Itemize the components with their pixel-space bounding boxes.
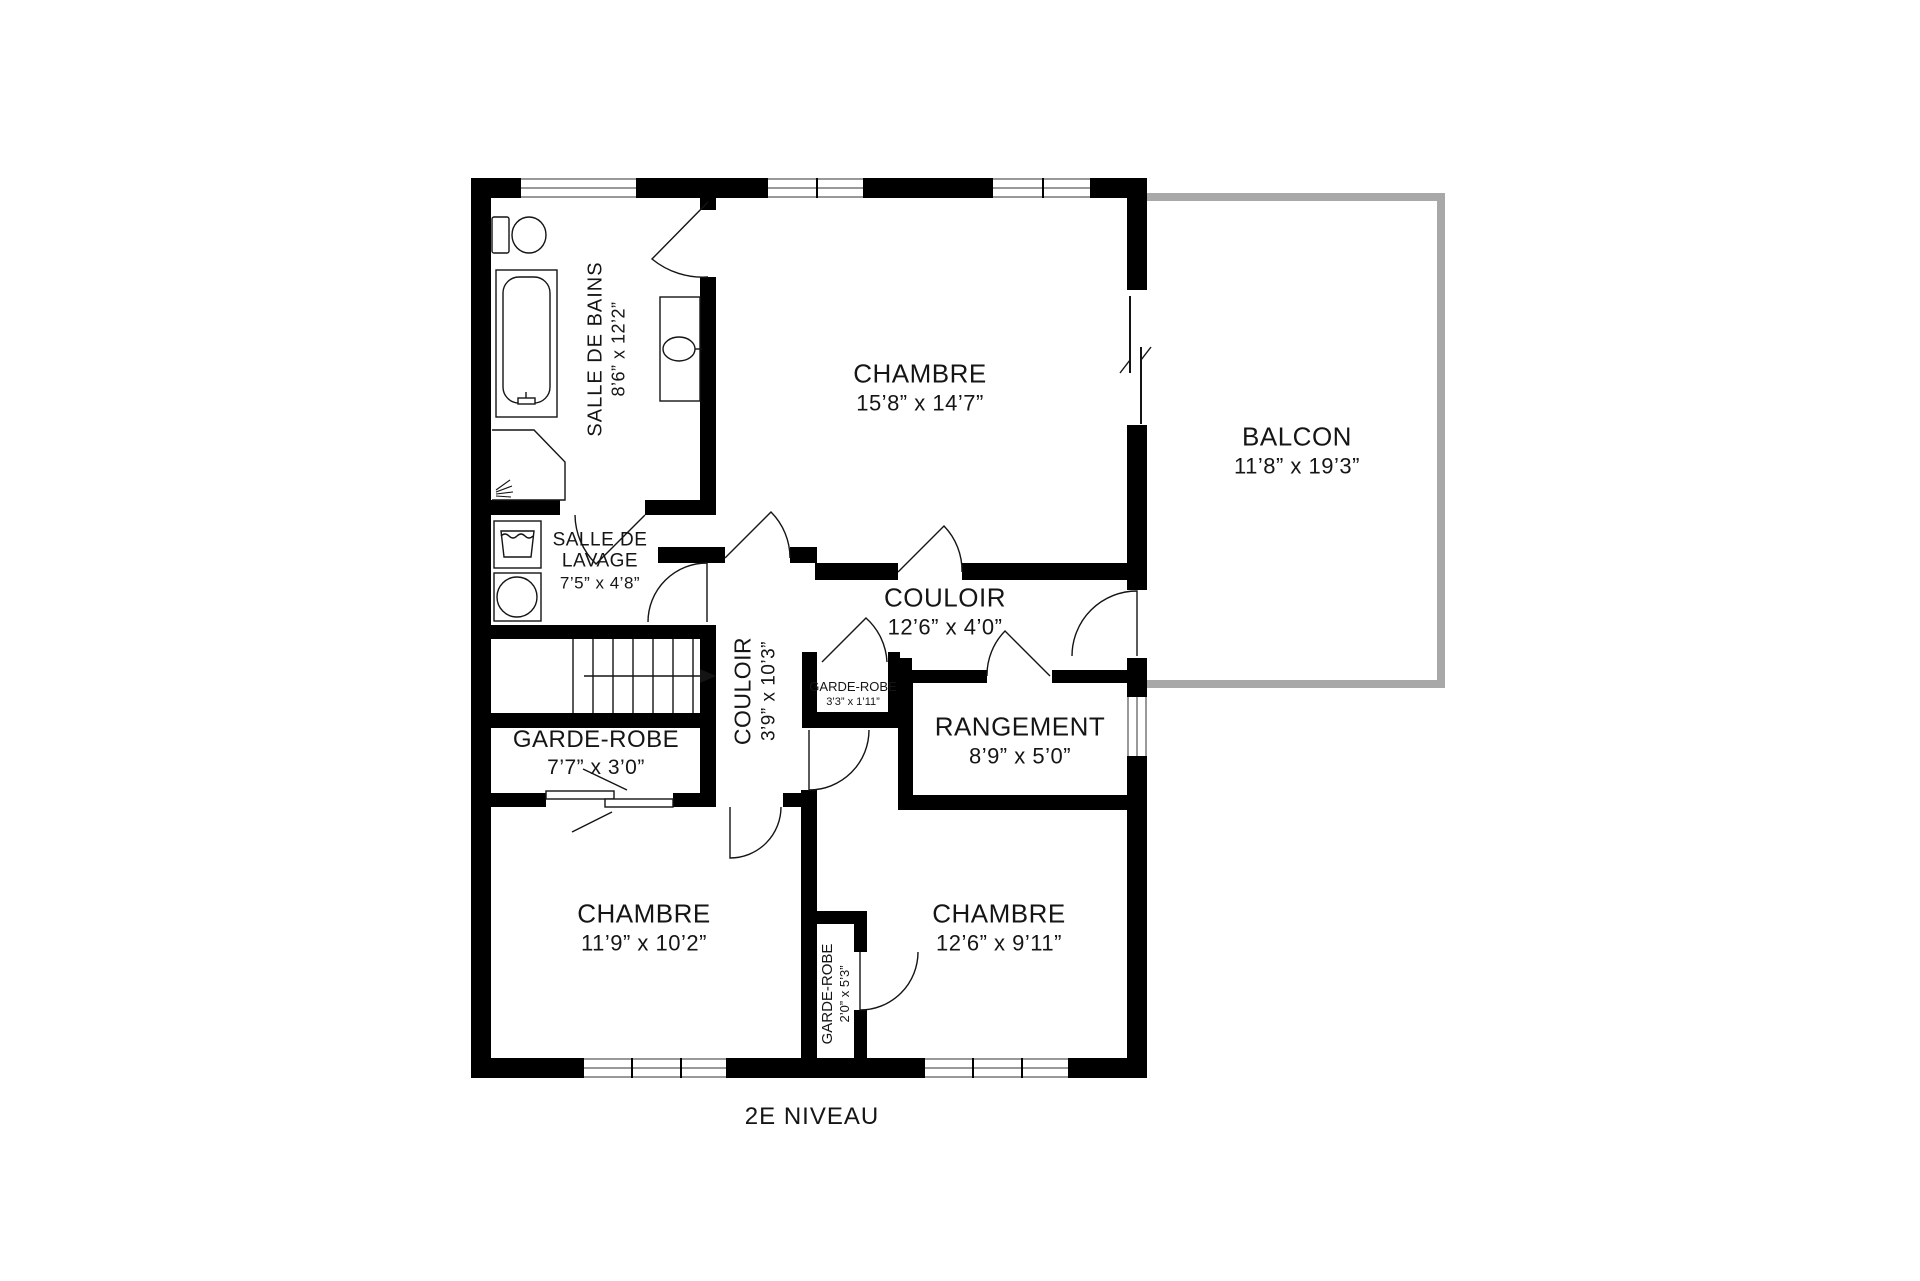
window-chambre-se — [923, 1058, 1070, 1078]
balcony-rail-top — [1147, 193, 1445, 201]
door-lavage-to-couloir — [648, 563, 707, 622]
room-dims: 7’5” x 4’8” — [553, 573, 648, 592]
wall-gr-strip-north — [801, 911, 867, 924]
door-couloir-to-chambre-w — [725, 512, 790, 558]
window-chambre-nord-1 — [766, 178, 865, 198]
wall-stairs-north — [491, 625, 716, 639]
room-dims: 12’6” x 9’11” — [932, 932, 1066, 957]
wall-junction-stub — [658, 547, 725, 563]
shower-icon — [492, 430, 565, 500]
room-label-balcon: BALCON 11’8” x 19’3” — [1234, 423, 1360, 480]
room-dims: 11’9” x 10’2” — [577, 932, 711, 957]
room-label-chambre-sud-est: CHAMBRE 12’6” x 9’11” — [932, 900, 1066, 957]
vanity-sink-icon — [660, 297, 702, 401]
room-label-chambre-principale: CHAMBRE 15’8” x 14’7” — [853, 360, 987, 417]
room-label-chambre-sud-ouest: CHAMBRE 11’9” x 10’2” — [577, 900, 711, 957]
window-chambre-nord-2 — [991, 178, 1092, 198]
wall-outer-left — [471, 178, 491, 1078]
room-dims: 7’7” x 3’0” — [513, 756, 679, 780]
wall-chambre-south-2 — [962, 563, 1127, 580]
wall-bath-south-west — [491, 500, 560, 515]
floor-plan: SALLE DE BAINS 8’6” x 12’2” CHAMBRE 15’8… — [0, 0, 1920, 1281]
wall-rangement-west — [898, 683, 913, 810]
room-dims: 3’3” x 1’11” — [809, 696, 896, 708]
window-bathroom — [519, 178, 638, 198]
wall-gr-strip-east-dn — [854, 1010, 867, 1058]
door-couloir-to-chambre-sw — [730, 807, 781, 858]
toilet-icon — [492, 217, 546, 253]
washer-icon — [494, 573, 541, 621]
room-name: BALCON — [1234, 423, 1360, 452]
wall-step-block — [790, 547, 817, 563]
room-label-salle-de-lavage: SALLE DE LAVAGE 7’5” x 4’8” — [553, 530, 648, 593]
room-name: GARDE-ROBE — [513, 727, 679, 754]
room-dims: 2’0” x 5’3” — [838, 944, 853, 1045]
room-name: COULOIR — [884, 584, 1006, 613]
room-dims: 15’8” x 14’7” — [853, 392, 987, 417]
sliding-closet-door — [546, 791, 673, 807]
room-label-garde-robe-strip: GARDE-ROBE 2’0” x 5’3” — [820, 944, 852, 1045]
wall-couloir-south-1 — [912, 670, 987, 683]
door-bath-to-chambre — [652, 202, 708, 277]
room-name: CHAMBRE — [932, 900, 1066, 929]
wall-garderobe-south-e — [673, 793, 716, 807]
wall-garderobe-south-w — [491, 793, 546, 807]
patio-door-gap — [1127, 290, 1147, 425]
wall-couloir-west — [700, 637, 716, 807]
wall-chambre-sw-east — [801, 790, 817, 1058]
bathtub-icon — [496, 270, 557, 417]
room-dims: 11’8” x 19’3” — [1234, 455, 1360, 480]
room-name: SALLE DE BAINS — [585, 261, 607, 436]
room-label-garde-robe-petit: GARDE-ROBE 3’3” x 1’11” — [809, 680, 896, 708]
room-name: CHAMBRE — [853, 360, 987, 389]
floor-title: 2E NIVEAU — [745, 1103, 879, 1131]
room-dims: 8’6” x 12’2” — [609, 261, 629, 436]
door-chambre-south — [898, 526, 962, 572]
room-label-garde-robe: GARDE-ROBE 7’7” x 3’0” — [513, 727, 679, 779]
wall-couloir-south-2 — [1052, 670, 1127, 683]
room-label-couloir-vertical: COULOIR 3’9” x 10’3” — [730, 637, 779, 745]
window-chambre-sw — [582, 1058, 728, 1078]
room-name: CHAMBRE — [577, 900, 711, 929]
balcony-rail-bottom — [1147, 680, 1445, 688]
room-name: RANGEMENT — [935, 713, 1106, 742]
wall-gr-strip-east-up — [854, 924, 867, 952]
balcony-door-gap — [1127, 590, 1147, 658]
room-name: COULOIR — [730, 637, 756, 745]
closet-leader-bottom — [572, 812, 612, 832]
room-name: GARDE-ROBE — [809, 680, 896, 695]
laundry-sink-icon — [494, 521, 541, 568]
wall-chambre-south-1 — [815, 563, 898, 580]
door-couloir-to-chambre-se — [809, 730, 869, 790]
door-garde-robe-petit — [822, 618, 887, 662]
room-label-salle-de-bains: SALLE DE BAINS 8’6” x 12’2” — [585, 261, 630, 436]
wall-bath-east-stub — [700, 198, 716, 210]
room-dims: 12’6” x 4’0” — [884, 616, 1006, 641]
room-label-rangement: RANGEMENT 8’9” x 5’0” — [935, 713, 1106, 770]
room-name: SALLE DE LAVAGE — [553, 530, 648, 573]
door-garde-robe-strip — [860, 952, 918, 1010]
stairs — [573, 639, 693, 713]
window-rangement — [1127, 695, 1147, 758]
room-dims: 8’9” x 5’0” — [935, 745, 1106, 770]
stairs-direction-arrow — [584, 669, 716, 683]
wall-bath-east — [700, 277, 716, 500]
wall-gr-petit-south — [802, 712, 900, 728]
room-dims: 3’9” x 10’3” — [758, 637, 779, 745]
room-label-couloir-horizontal: COULOIR 12’6” x 4’0” — [884, 584, 1006, 641]
wall-rangement-south — [898, 795, 1127, 810]
balcony-rail-right — [1437, 193, 1445, 688]
room-name: GARDE-ROBE — [820, 944, 837, 1045]
wall-bath-south-east — [645, 500, 716, 515]
